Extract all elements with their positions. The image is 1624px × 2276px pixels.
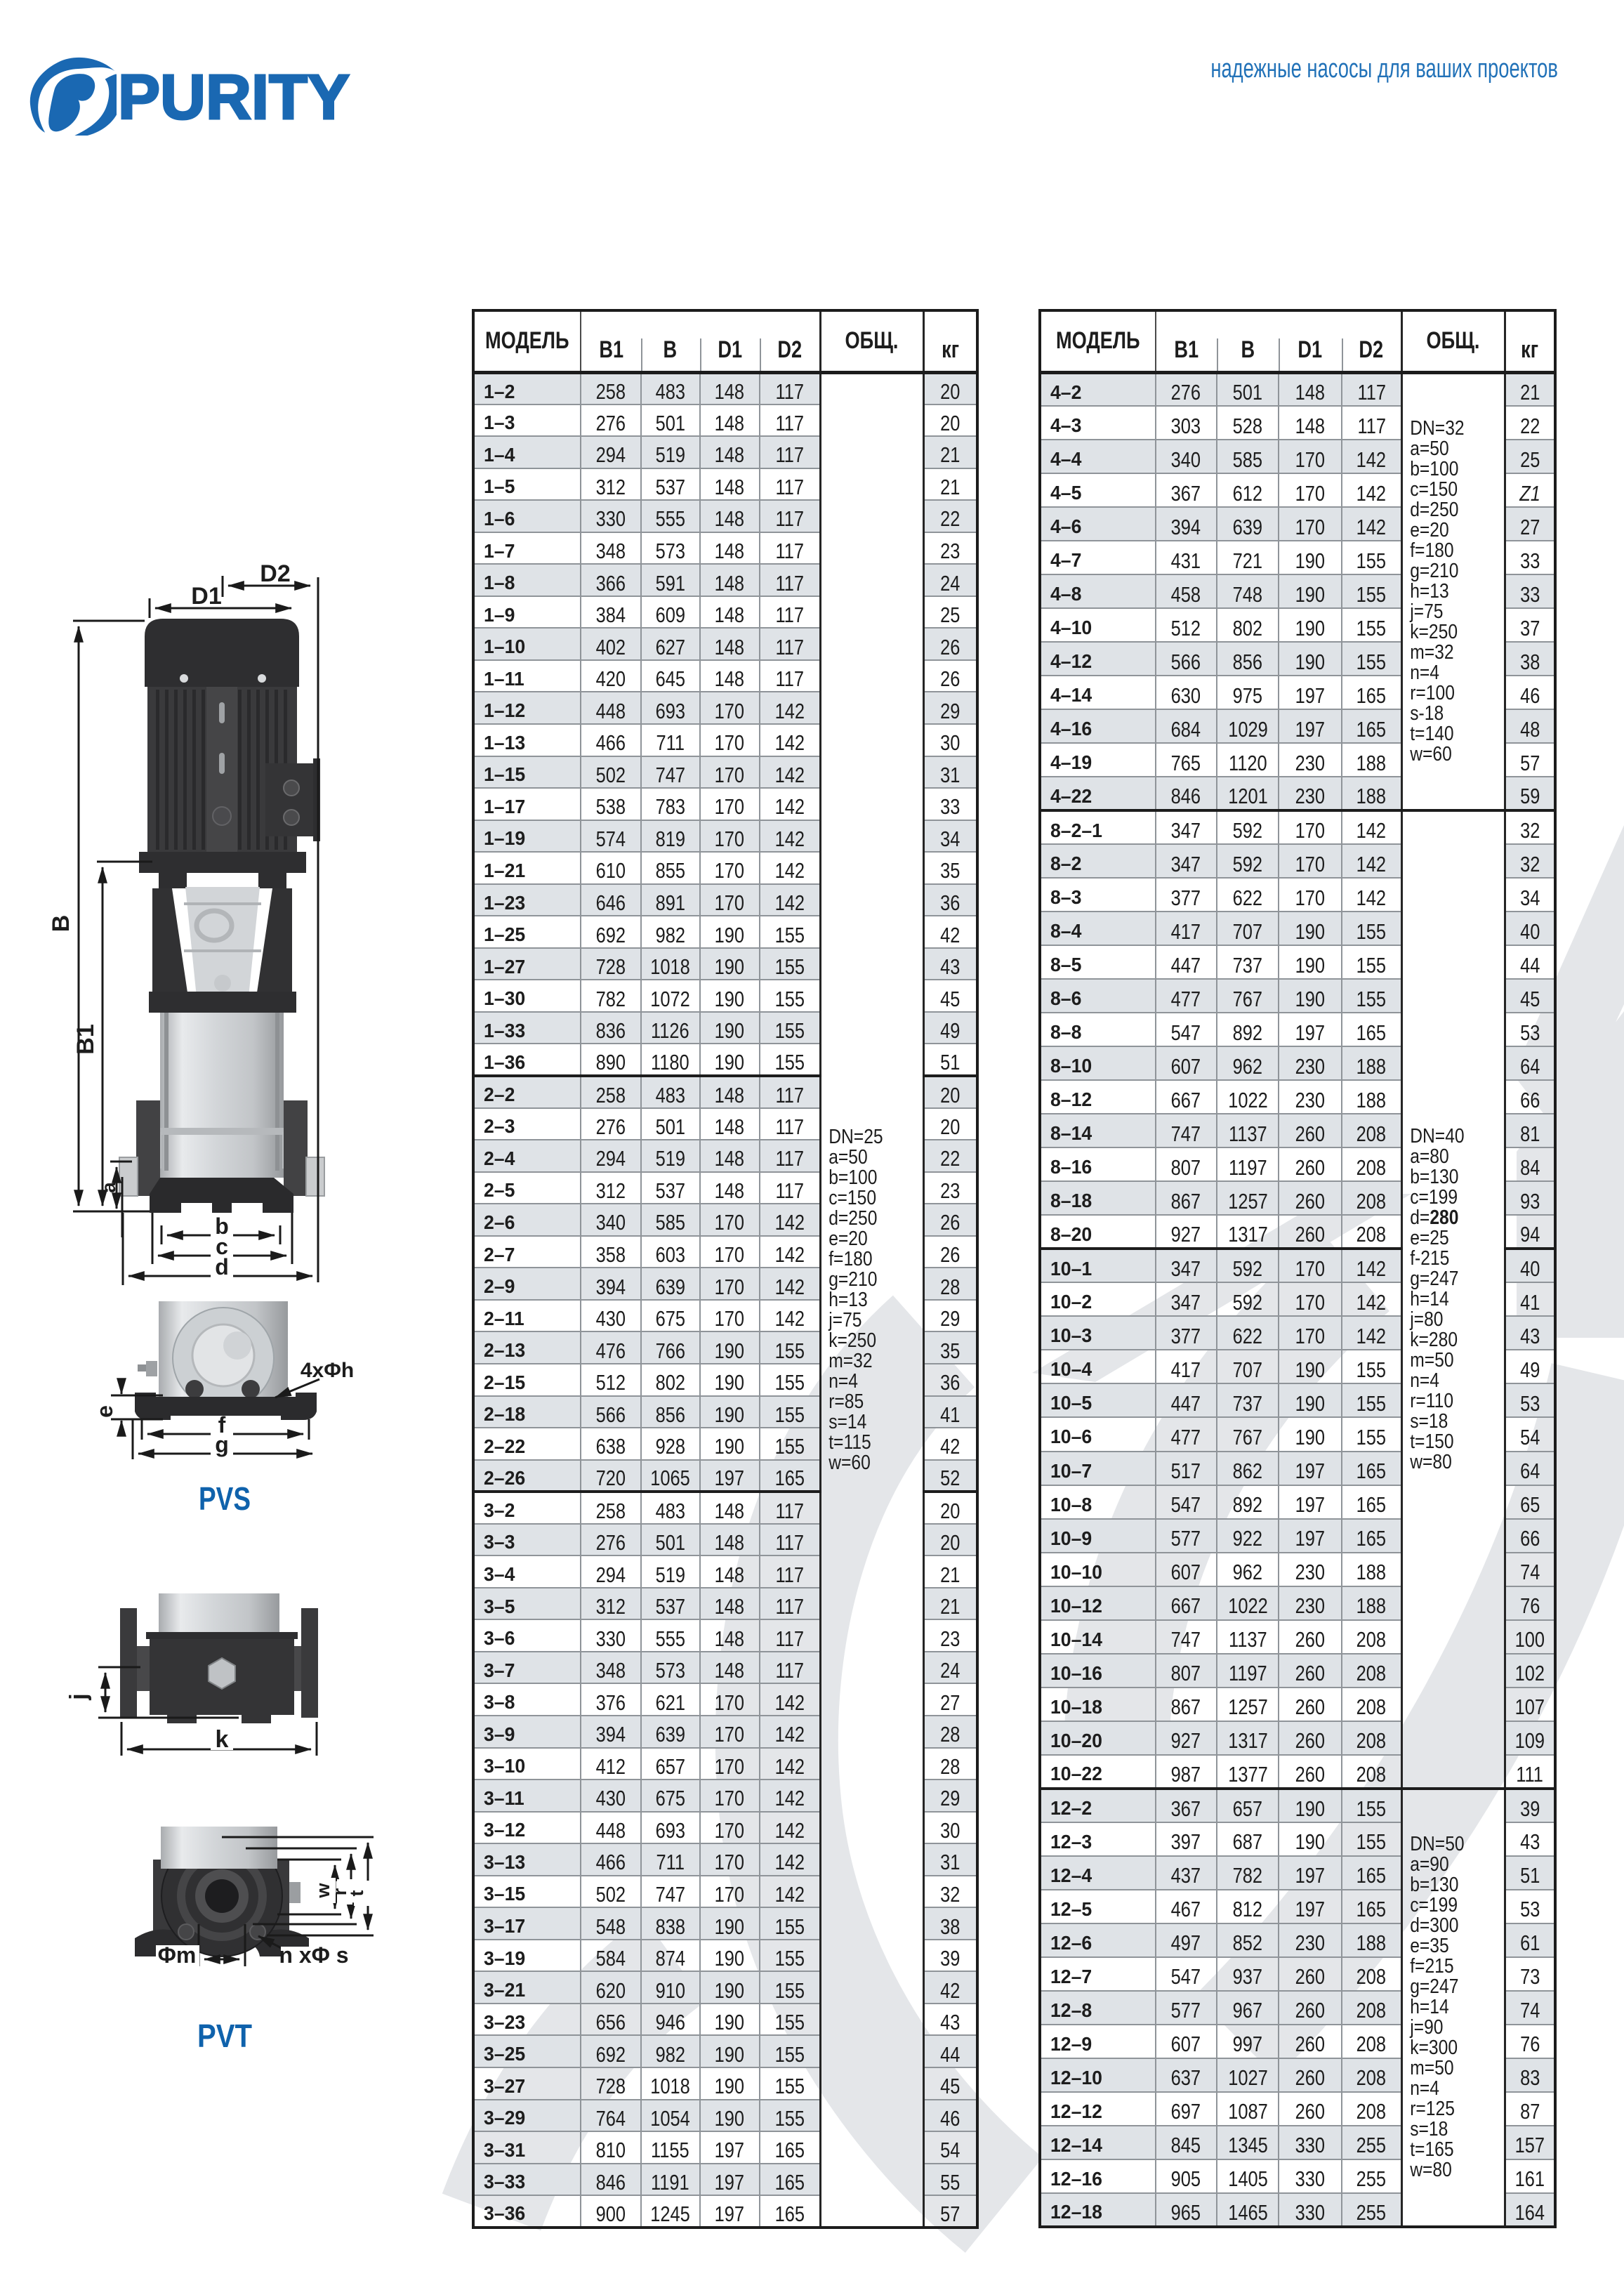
svg-text:B: B [48,915,74,933]
svg-text:4xΦh: 4xΦh [301,1359,354,1382]
svg-text:PVT: PVT [197,2018,252,2054]
svg-text:B1: B1 [72,1024,99,1054]
svg-text:Φm: Φm [158,1942,197,1968]
svg-text:D2: D2 [260,560,290,587]
svg-text:a: a [98,1182,119,1193]
svg-text:g: g [215,1432,229,1457]
svg-text:t: t [346,1890,367,1897]
svg-text:e: e [92,1405,117,1418]
svg-text:D1: D1 [191,583,221,610]
svg-text:d: d [215,1254,229,1280]
svg-text:n xΦ s: n xΦ s [279,1942,348,1968]
svg-text:j: j [65,1693,92,1700]
svg-text:PVS: PVS [199,1480,251,1517]
svg-text:k: k [216,1726,229,1753]
